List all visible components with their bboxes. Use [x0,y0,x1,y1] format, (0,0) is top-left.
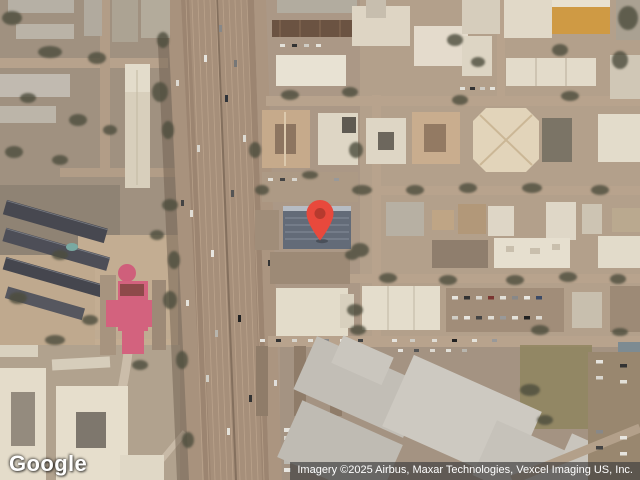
attribution-bar: Imagery ©2025 Airbus, Maxar Technologies… [290,462,640,480]
map-viewport[interactable]: Google Imagery ©2025 Airbus, Maxar Techn… [0,0,640,480]
pin-shadow [316,239,328,243]
blocks-east-row3 [362,286,640,332]
attribution-text: Imagery ©2025 Airbus, Maxar Technologies… [297,464,633,476]
satellite-imagery [0,0,640,480]
pin-dot [314,208,325,219]
google-logo[interactable]: Google [9,451,87,477]
